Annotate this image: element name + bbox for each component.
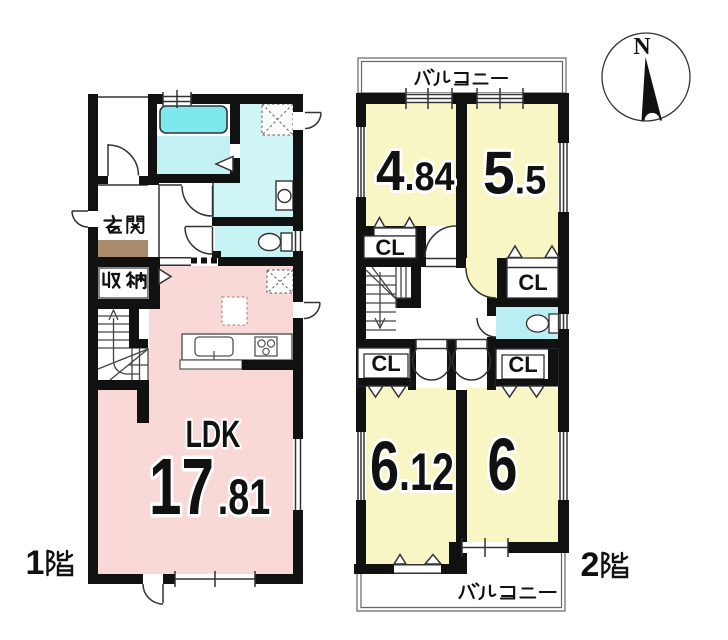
svg-text:CL: CL — [375, 235, 404, 260]
svg-text:2: 2 — [581, 546, 600, 584]
svg-text:6: 6 — [488, 423, 518, 506]
svg-text:N: N — [633, 34, 651, 60]
svg-text:1: 1 — [26, 544, 45, 582]
svg-text:CL: CL — [508, 352, 537, 377]
svg-text:CL: CL — [518, 270, 547, 295]
svg-text:.81: .81 — [218, 470, 270, 525]
svg-text:17: 17 — [149, 442, 214, 531]
svg-text:CL: CL — [371, 351, 400, 376]
